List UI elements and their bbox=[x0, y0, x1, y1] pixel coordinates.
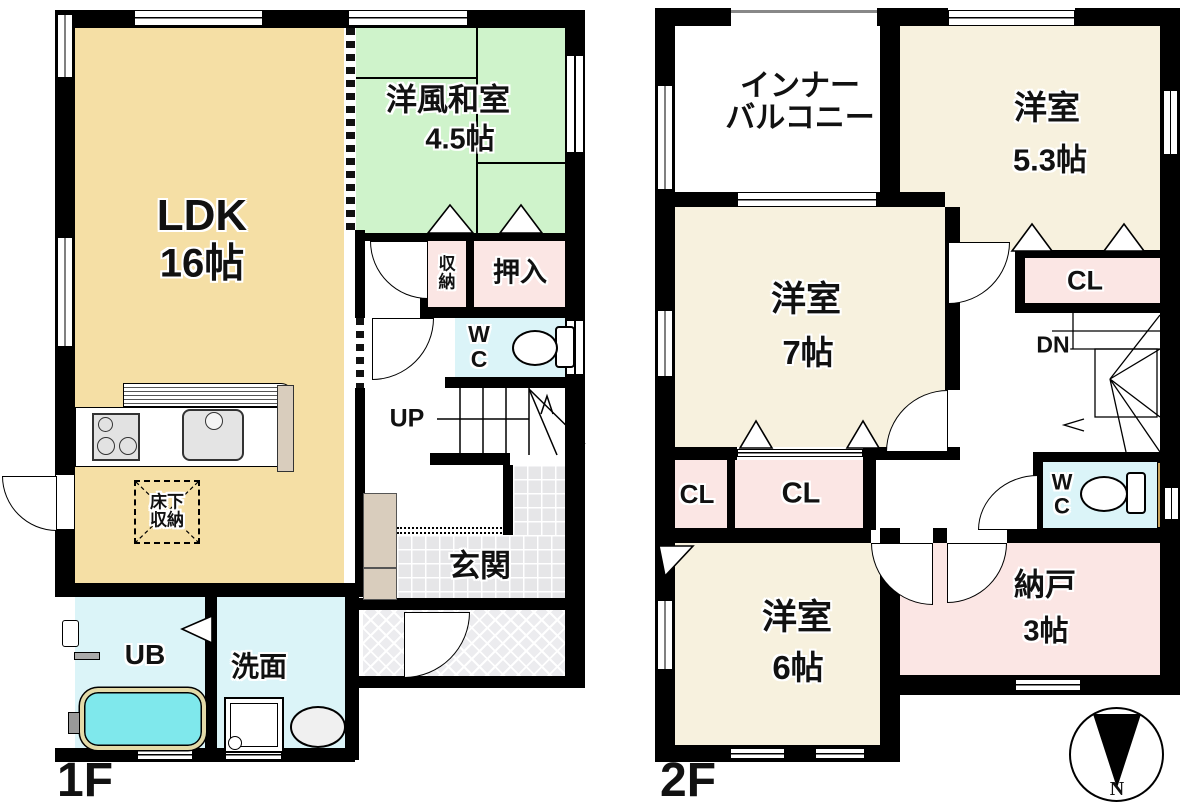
room-wc-2f-label: WC bbox=[1052, 470, 1073, 518]
wall bbox=[1015, 303, 1160, 313]
room-yoshitsu-6-size: 6帖 bbox=[772, 650, 823, 686]
window bbox=[137, 750, 193, 760]
room-shuno-label: 収納 bbox=[439, 256, 456, 293]
window bbox=[657, 600, 673, 670]
compass-north-label: N bbox=[1110, 779, 1124, 801]
room-yoshitsu-7-label: 洋室 bbox=[771, 281, 841, 319]
wall bbox=[655, 528, 871, 543]
room-yoshitsu-5-3-label: 洋室 bbox=[1014, 90, 1080, 126]
room-washitsu-size: 4.5帖 bbox=[425, 124, 494, 155]
stairs-dn-label: DN bbox=[1036, 333, 1069, 358]
entrance-step-line bbox=[397, 527, 513, 534]
floor-plan: UP 床下 収納 LDK 16帖 洋風和室 4.5帖 bbox=[0, 0, 1191, 809]
door-triangle bbox=[182, 616, 212, 643]
folding-door-triangle bbox=[740, 421, 772, 448]
window bbox=[657, 310, 673, 377]
wall bbox=[675, 447, 737, 460]
bath-faucet-icon bbox=[68, 712, 80, 734]
window bbox=[657, 85, 673, 190]
room-ub-label: UB bbox=[125, 640, 165, 670]
kitchen-cabinet bbox=[277, 385, 294, 472]
room-yoshitsu-7-size: 7帖 bbox=[782, 335, 833, 371]
mixer-tap-icon bbox=[74, 652, 100, 660]
wall bbox=[1007, 528, 1180, 543]
window bbox=[134, 10, 263, 26]
room-yoshitsu-6 bbox=[675, 543, 880, 745]
wall bbox=[356, 233, 565, 241]
tatami-line bbox=[356, 77, 476, 79]
wall bbox=[466, 241, 474, 307]
window bbox=[948, 10, 1075, 26]
toilet-tank-icon bbox=[1126, 472, 1146, 514]
room-wc-1f-label: WC bbox=[468, 322, 490, 372]
closet-cl-5-3-label: CL bbox=[1067, 266, 1103, 295]
folding-door-triangle bbox=[428, 205, 473, 233]
window bbox=[566, 55, 584, 153]
room-yoshitsu-5-3-size: 5.3帖 bbox=[1013, 143, 1087, 176]
wall bbox=[880, 8, 900, 207]
window bbox=[730, 748, 785, 759]
window bbox=[57, 14, 73, 78]
sliding-partition bbox=[346, 28, 355, 233]
stairs-up-label: UP bbox=[390, 406, 425, 433]
balcony-open-edge bbox=[731, 10, 880, 13]
room-ldk bbox=[75, 28, 344, 583]
folding-door-triangle bbox=[1012, 224, 1052, 251]
door-arc bbox=[370, 241, 428, 299]
shower-unit-icon bbox=[62, 620, 79, 647]
wall bbox=[503, 465, 513, 535]
window bbox=[737, 192, 877, 207]
window bbox=[815, 748, 865, 759]
room-washitsu-label: 洋風和室 bbox=[386, 83, 510, 116]
window bbox=[57, 237, 73, 347]
toilet-bowl-icon bbox=[1080, 476, 1128, 512]
door-gap bbox=[55, 474, 75, 530]
stove-burner bbox=[119, 437, 137, 455]
door-arc bbox=[2, 476, 57, 531]
folding-door-triangle bbox=[500, 205, 542, 233]
room-senmen-label: 洗面 bbox=[231, 652, 287, 682]
tatami-line bbox=[477, 162, 565, 164]
room-nando-label: 納戸 bbox=[1014, 568, 1076, 601]
folding-door-triangle bbox=[1104, 224, 1144, 251]
shoe-cabinet bbox=[363, 568, 397, 600]
faucet-icon bbox=[205, 412, 223, 430]
room-nando bbox=[900, 543, 1160, 675]
room-ldk-label: LDK bbox=[157, 192, 247, 240]
kitchen-counter-top bbox=[123, 383, 293, 407]
window bbox=[1163, 90, 1178, 155]
room-ldk-size: 16帖 bbox=[160, 242, 245, 285]
sliding-partition bbox=[356, 318, 364, 388]
toilet-tank-icon bbox=[555, 326, 575, 368]
wall bbox=[863, 460, 876, 530]
closet-opening bbox=[737, 449, 863, 457]
washing-machine-dial bbox=[228, 736, 242, 750]
folding-door-triangle bbox=[847, 421, 879, 448]
toilet-bowl-icon bbox=[512, 330, 558, 366]
vanity-sink-icon bbox=[290, 706, 346, 748]
wall bbox=[727, 460, 735, 530]
shoe-cabinet bbox=[363, 493, 397, 568]
wall bbox=[355, 230, 365, 318]
room-oshiire-label: 押入 bbox=[493, 258, 547, 287]
bathtub-icon bbox=[80, 688, 206, 750]
window bbox=[1164, 487, 1179, 520]
room-yoshitsu-6-label: 洋室 bbox=[762, 599, 832, 637]
underfloor-storage-label: 床下 収納 bbox=[150, 494, 184, 531]
closet-cl-a-label: CL bbox=[680, 480, 715, 508]
door-arc bbox=[978, 475, 1038, 530]
wall bbox=[55, 583, 365, 597]
floor1-label: 1F bbox=[57, 755, 113, 807]
door-arc bbox=[372, 318, 434, 380]
stove-burner bbox=[98, 417, 113, 432]
window bbox=[348, 10, 468, 26]
stairs-up bbox=[437, 386, 585, 455]
genkan-tile-upper bbox=[513, 465, 565, 535]
room-inner-balcony-label: インナーバルコニー bbox=[725, 71, 874, 136]
door-triangle bbox=[659, 546, 693, 576]
door-arc bbox=[948, 242, 1010, 304]
wall bbox=[1033, 452, 1180, 462]
stove-burner bbox=[97, 437, 115, 455]
wall bbox=[420, 307, 565, 318]
wall bbox=[933, 528, 947, 543]
floor2-label: 2F bbox=[660, 755, 716, 807]
wall bbox=[355, 676, 585, 688]
window bbox=[1015, 679, 1081, 691]
room-genkan-label: 玄関 bbox=[449, 549, 511, 582]
closet-cl-b-label: CL bbox=[782, 478, 821, 509]
room-nando-size: 3帖 bbox=[1023, 616, 1068, 647]
